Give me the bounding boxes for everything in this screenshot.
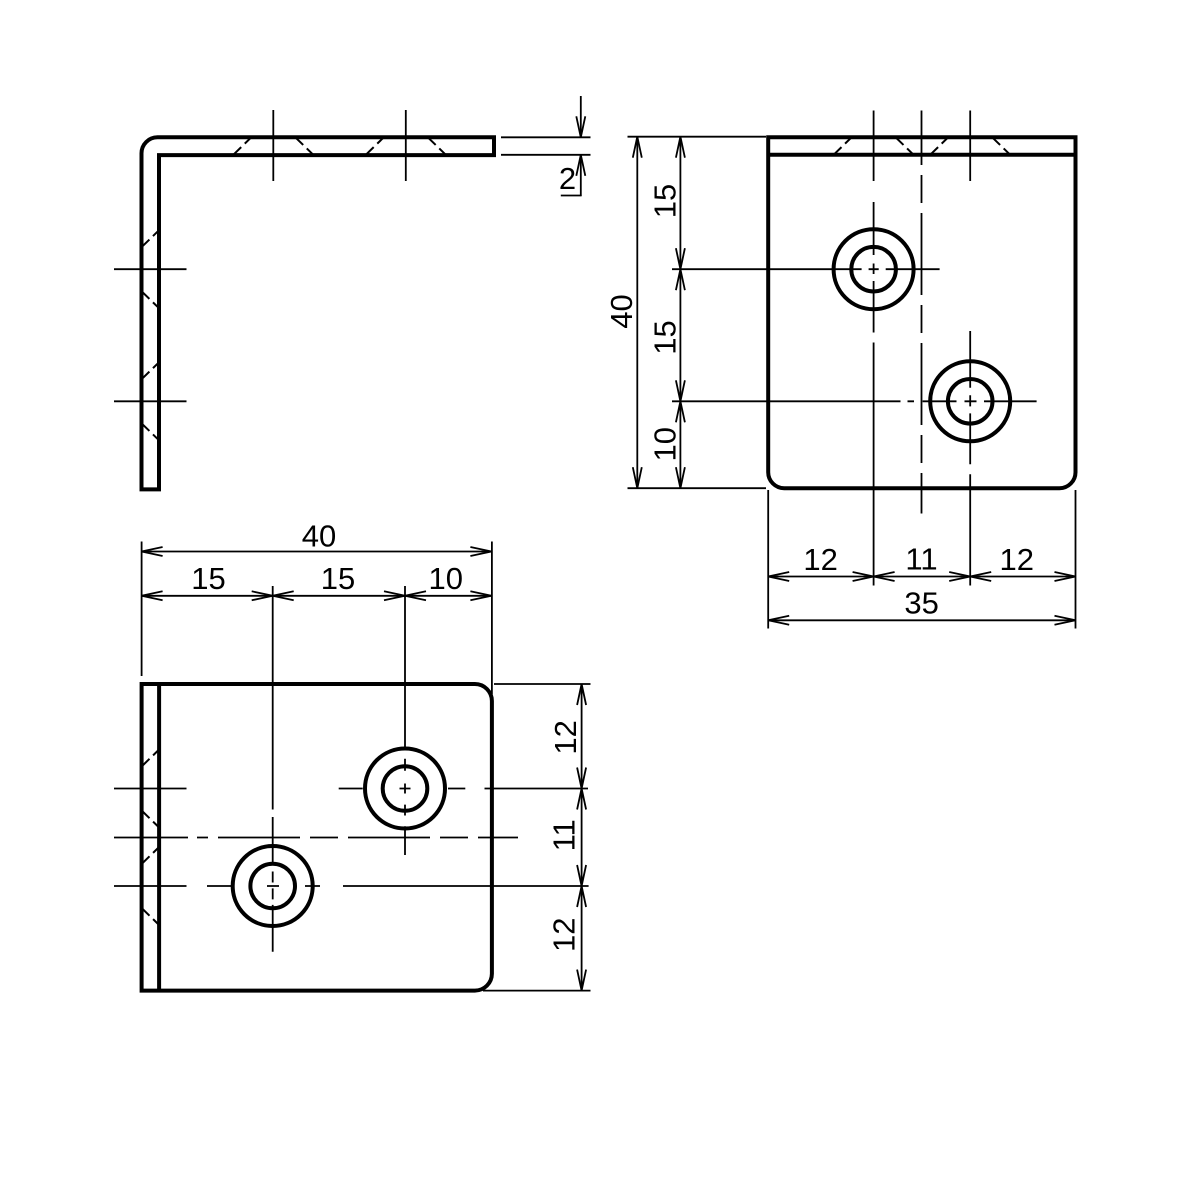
svg-text:10: 10 (648, 427, 683, 461)
svg-text:40: 40 (302, 518, 336, 553)
svg-text:35: 35 (904, 585, 938, 620)
svg-text:11: 11 (905, 541, 937, 576)
svg-text:12: 12 (803, 542, 837, 577)
svg-text:15: 15 (191, 561, 225, 596)
svg-text:15: 15 (648, 184, 683, 218)
svg-text:10: 10 (429, 561, 463, 596)
svg-text:12: 12 (999, 542, 1033, 577)
svg-text:2: 2 (559, 161, 576, 196)
svg-text:40: 40 (604, 294, 639, 328)
svg-text:15: 15 (648, 320, 683, 354)
svg-text:12: 12 (547, 918, 582, 952)
svg-text:12: 12 (548, 720, 583, 754)
svg-text:15: 15 (321, 561, 355, 596)
svg-text:11: 11 (547, 819, 582, 851)
